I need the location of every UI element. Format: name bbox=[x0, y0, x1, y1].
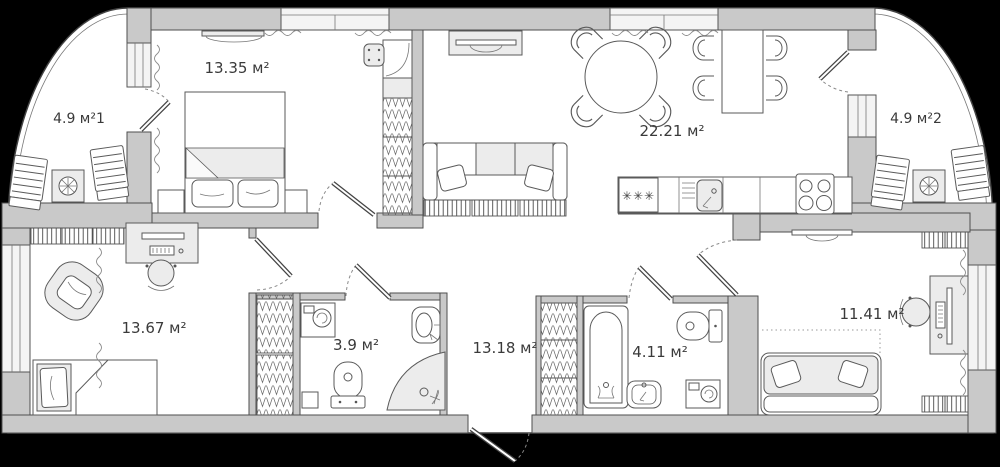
bathtub bbox=[584, 306, 628, 408]
double-bed bbox=[185, 92, 285, 213]
label-living-kitchen: 22.21 м² bbox=[639, 122, 704, 140]
label-bathroom-large: 4.11 м² bbox=[632, 343, 688, 361]
wardrobe-west bbox=[257, 295, 293, 415]
window-balcony-right bbox=[848, 95, 876, 137]
living-sofa bbox=[423, 143, 567, 200]
kitchen-counter: ✳✳✳ bbox=[618, 174, 852, 214]
bedroom-stool bbox=[364, 44, 384, 66]
stove bbox=[796, 174, 834, 214]
nightstand-right bbox=[285, 190, 307, 213]
toilet bbox=[677, 310, 722, 342]
freezer-symbol: ✳✳✳ bbox=[622, 189, 655, 203]
window-top-right bbox=[610, 8, 718, 30]
label-bathroom-small: 3.9 м² bbox=[333, 336, 379, 354]
label-balcony-right: 4.9 м²2 bbox=[890, 111, 942, 127]
desk bbox=[930, 276, 968, 354]
window-right bbox=[968, 265, 996, 370]
nightstand-left bbox=[158, 190, 184, 213]
label-room-bottom-left: 13.67 м² bbox=[121, 319, 186, 337]
label-hallway: 13.18 м² bbox=[472, 339, 537, 357]
living-tv bbox=[449, 31, 522, 55]
shaft bbox=[728, 296, 758, 415]
duct bbox=[302, 392, 318, 408]
sofa-bed bbox=[761, 353, 881, 415]
balcony-table bbox=[52, 170, 84, 202]
floor-plan: ✳✳✳ bbox=[0, 0, 1000, 467]
sink bbox=[627, 381, 661, 408]
label-balcony-left: 4.9 м²1 bbox=[53, 111, 105, 127]
toilet bbox=[331, 362, 365, 408]
window-top-left bbox=[281, 8, 389, 30]
bedroom-wardrobe bbox=[383, 40, 412, 215]
sink bbox=[412, 307, 440, 343]
label-bedroom: 13.35 м² bbox=[204, 59, 269, 77]
window-balcony-left bbox=[127, 43, 151, 87]
window-left bbox=[2, 245, 30, 372]
label-room-bottom-right: 11.41 м² bbox=[839, 305, 904, 323]
radiator bbox=[31, 228, 124, 244]
balcony-table bbox=[913, 170, 945, 202]
living-console-radiator bbox=[424, 200, 566, 216]
wardrobe-east bbox=[541, 303, 577, 415]
floor-plan-stage: ✳✳✳ bbox=[0, 0, 1000, 467]
washing-machine bbox=[301, 303, 335, 337]
washing-machine bbox=[686, 380, 720, 408]
single-bed bbox=[33, 360, 157, 415]
desk bbox=[126, 223, 198, 263]
fridge: ✳✳✳ bbox=[619, 178, 658, 212]
